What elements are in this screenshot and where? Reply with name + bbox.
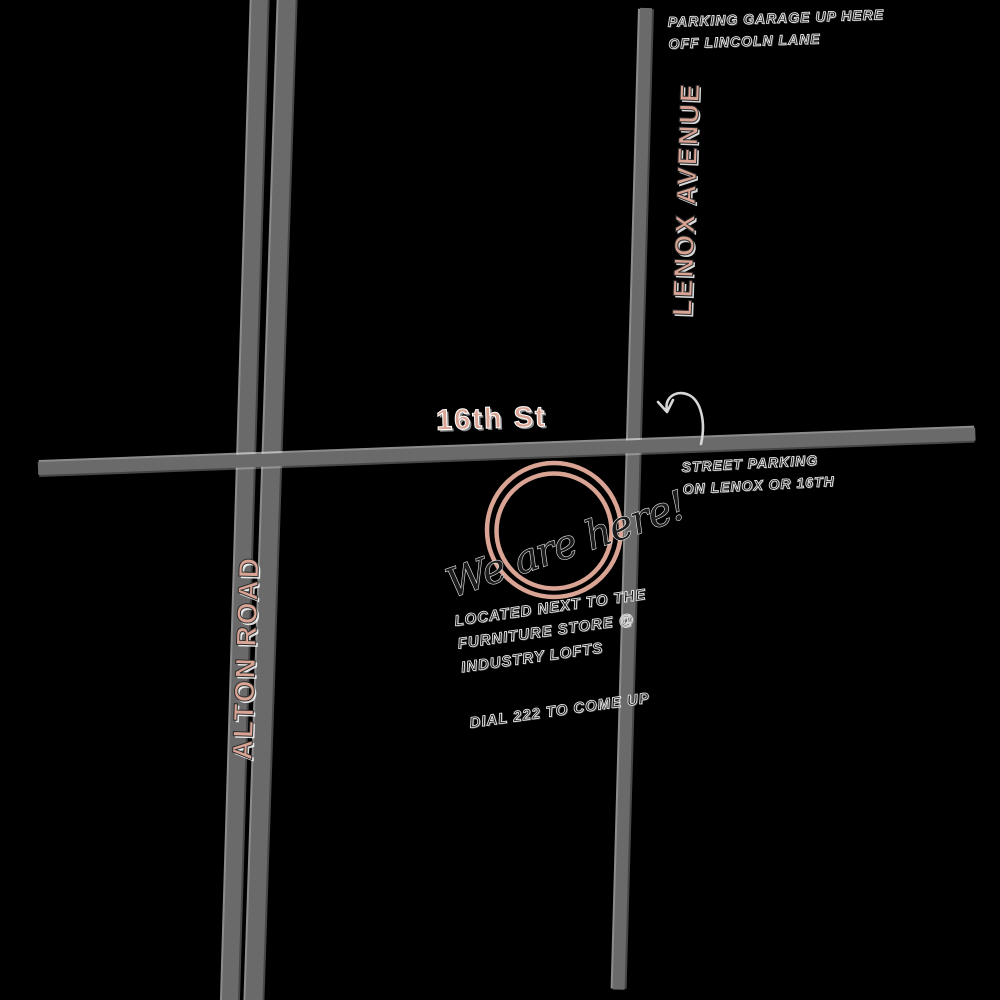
lenox-avenue-label: LENOX AVENUE xyxy=(667,96,705,317)
parking-garage-note: PARKING GARAGE UP HERE OFF LINCOLN LANE xyxy=(667,4,885,55)
parking-arrow-head xyxy=(658,400,673,412)
here-marker-label: We are here! xyxy=(440,483,691,608)
sixteenth-st-label: 16th St xyxy=(435,401,547,438)
alton-road-label: ALTON ROAD xyxy=(227,570,264,761)
lenox-avenue-line xyxy=(613,8,652,990)
here-marker-ring-outer xyxy=(487,463,621,597)
map-vector-overlay: We are here! xyxy=(0,0,1000,1000)
location-map: LENOX AVENUE ALTON ROAD 16th St PARKING … xyxy=(0,0,1000,1000)
here-marker-ring-inner xyxy=(497,474,612,589)
street-parking-note: STREET PARKING ON LENOX OR 16TH xyxy=(681,449,835,500)
parking-arrow-icon xyxy=(667,393,703,444)
